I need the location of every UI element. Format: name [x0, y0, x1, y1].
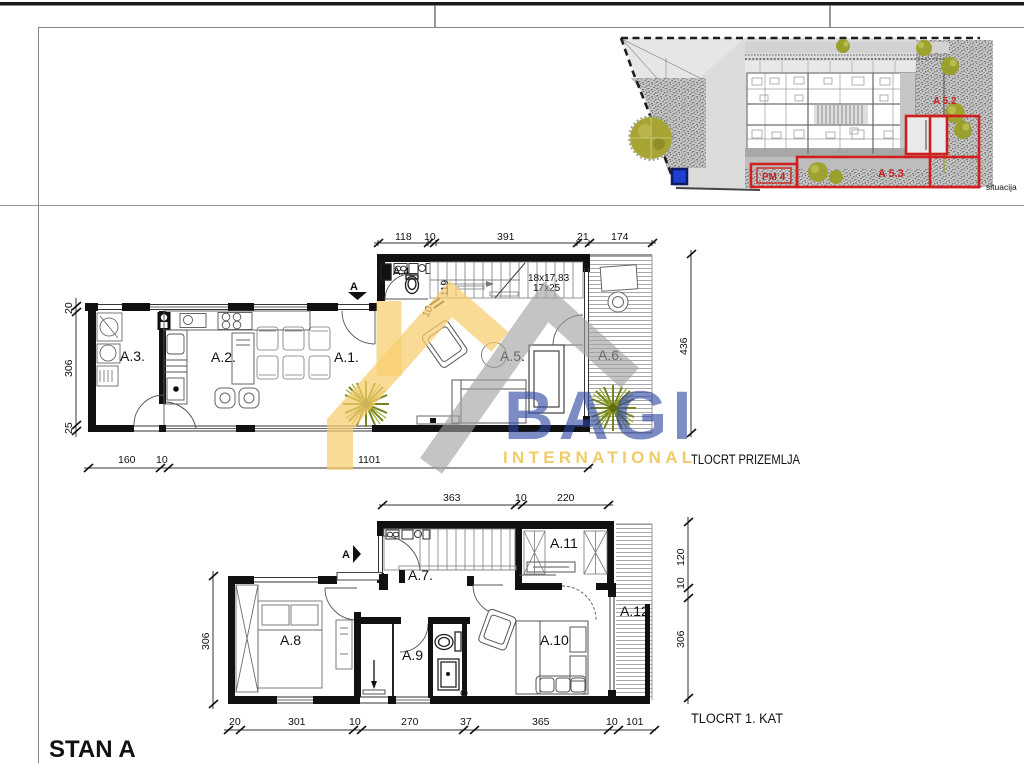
svg-text:A.7.: A.7.: [408, 567, 433, 583]
svg-text:436: 436: [678, 337, 690, 355]
svg-text:174: 174: [611, 231, 629, 243]
svg-text:10: 10: [424, 231, 436, 243]
svg-text:25: 25: [63, 422, 75, 434]
svg-text:A: A: [350, 281, 358, 293]
svg-text:1101: 1101: [358, 454, 381, 466]
svg-text:A 5.3: A 5.3: [878, 168, 904, 180]
svg-text:A.8: A.8: [280, 632, 301, 648]
svg-text:365: 365: [532, 716, 550, 728]
svg-text:BAGI: BAGI: [504, 377, 697, 454]
svg-text:A.9: A.9: [402, 647, 423, 663]
svg-text:INTERNATIONAL: INTERNATIONAL: [503, 448, 696, 467]
svg-text:PM 4: PM 4: [762, 172, 786, 183]
svg-text:37: 37: [460, 716, 472, 728]
svg-text:120: 120: [675, 548, 687, 566]
svg-text:A: A: [342, 549, 350, 561]
svg-text:220: 220: [557, 492, 575, 504]
svg-text:A.10: A.10: [540, 632, 569, 648]
svg-text:STAN A: STAN A: [49, 736, 136, 763]
svg-text:10: 10: [606, 716, 618, 728]
svg-text:A.3.: A.3.: [120, 348, 145, 364]
svg-text:A.1.: A.1.: [334, 349, 359, 365]
svg-text:118: 118: [395, 231, 412, 243]
svg-text:10: 10: [675, 577, 687, 589]
svg-text:A.11: A.11: [550, 535, 578, 551]
svg-text:A 5.2: A 5.2: [933, 96, 957, 107]
svg-text:306: 306: [63, 359, 75, 377]
svg-text:A.12: A.12: [620, 603, 649, 619]
svg-text:160: 160: [118, 454, 136, 466]
svg-text:10: 10: [156, 454, 168, 466]
svg-text:TLOCRT 1. KAT: TLOCRT 1. KAT: [691, 711, 783, 726]
svg-text:306: 306: [675, 630, 687, 648]
svg-text:306: 306: [200, 632, 212, 650]
svg-text:A.2.: A.2.: [211, 349, 236, 365]
svg-text:10: 10: [515, 492, 527, 504]
svg-text:391: 391: [497, 231, 515, 243]
svg-text:101: 101: [626, 716, 644, 728]
svg-text:363: 363: [443, 492, 461, 504]
svg-text:270: 270: [401, 716, 419, 728]
svg-text:21: 21: [577, 231, 589, 243]
svg-text:TLOCRT PRIZEMLJA: TLOCRT PRIZEMLJA: [691, 452, 800, 467]
svg-text:301: 301: [288, 716, 306, 728]
svg-text:10: 10: [349, 716, 361, 728]
svg-text:20: 20: [63, 302, 75, 314]
svg-text:20: 20: [229, 716, 241, 728]
svg-text:situacija: situacija: [986, 182, 1017, 192]
